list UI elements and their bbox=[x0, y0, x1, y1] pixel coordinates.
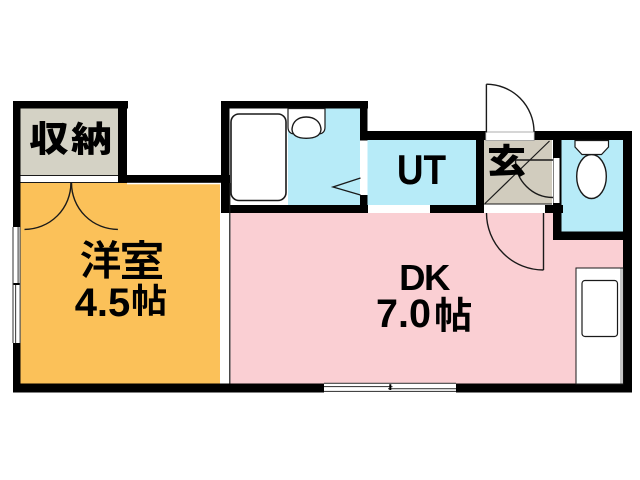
svg-text:7.0: 7.0 bbox=[376, 292, 431, 336]
svg-text:4.5: 4.5 bbox=[75, 281, 131, 325]
svg-text:UT: UT bbox=[397, 147, 446, 194]
